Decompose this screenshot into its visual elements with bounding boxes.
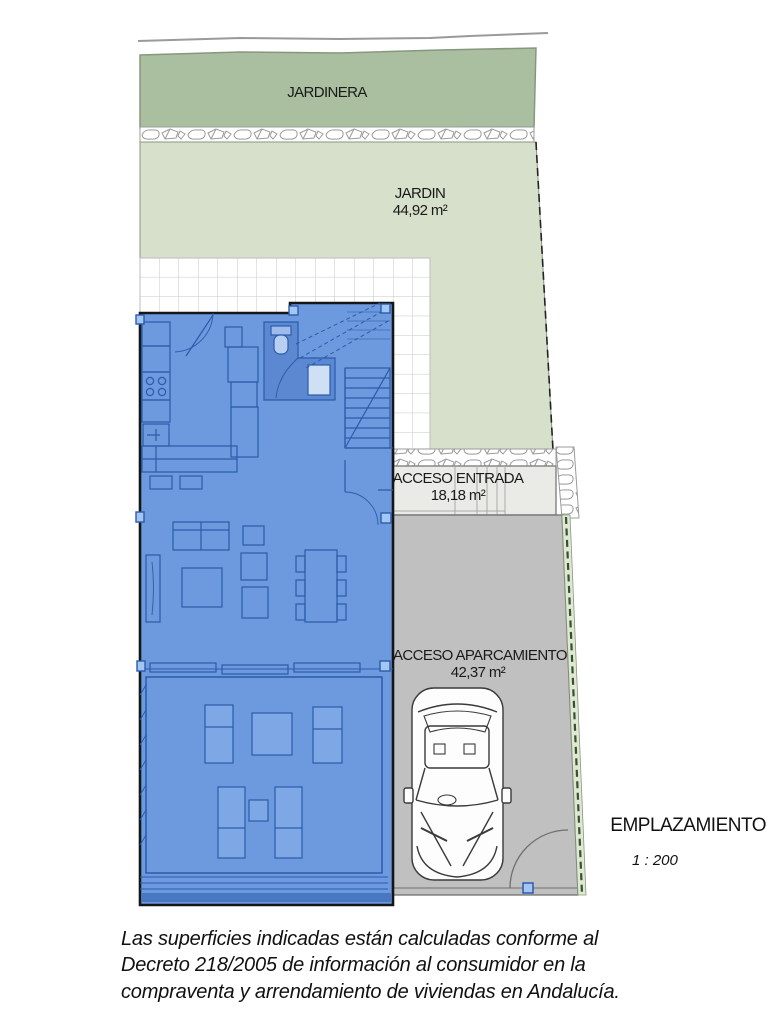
toilet-icon xyxy=(274,335,288,354)
stone-band-top xyxy=(140,127,534,142)
legal-note: Las superficies indicadas están calculad… xyxy=(121,926,641,1005)
jardinera-label: JARDINERA xyxy=(130,84,524,101)
car-icon xyxy=(404,688,511,880)
acceso-aparcamiento-area-value: 42,37 m² xyxy=(393,664,563,681)
legal-line-3: compraventa y arrendamiento de viviendas… xyxy=(121,979,641,1005)
legal-line-1: Las superficies indicadas están calculad… xyxy=(121,926,641,952)
site-plan-page: JARDINERA JARDIN 44,92 m² ACCESO ENTRADA… xyxy=(0,0,768,1013)
acceso-entrada-area-value: 18,18 m² xyxy=(388,487,528,504)
top-boundary-line xyxy=(138,33,548,41)
terrace-armchair-1 xyxy=(205,705,233,763)
house-plan xyxy=(136,303,393,905)
house-bottom-band xyxy=(142,893,391,902)
shower-icon xyxy=(308,365,330,395)
terrace-armchair-2 xyxy=(313,707,342,763)
sun-lounger-1 xyxy=(218,787,245,858)
terrace-table xyxy=(252,713,292,755)
lounger-side-table xyxy=(249,800,268,821)
acceso-entrada-title: ACCESO ENTRADA xyxy=(388,470,528,487)
jardin-label: JARDIN 44,92 m² xyxy=(340,185,500,219)
sun-lounger-2 xyxy=(275,787,302,858)
acceso-aparcamiento-title: ACCESO APARCAMIENTO xyxy=(393,647,563,664)
gate-marker xyxy=(523,883,533,893)
plan-scale: 1 : 200 xyxy=(632,852,678,869)
legal-line-2: Decreto 218/2005 de información al consu… xyxy=(121,952,641,978)
plan-title: EMPLAZAMIENTO xyxy=(560,815,766,837)
toilet-tank xyxy=(271,326,291,335)
acceso-aparcamiento-label: ACCESO APARCAMIENTO 42,37 m² xyxy=(393,647,563,681)
jardin-title: JARDIN xyxy=(340,185,500,202)
jardin-area-value: 44,92 m² xyxy=(340,202,500,219)
acceso-entrada-label: ACCESO ENTRADA 18,18 m² xyxy=(388,470,528,504)
